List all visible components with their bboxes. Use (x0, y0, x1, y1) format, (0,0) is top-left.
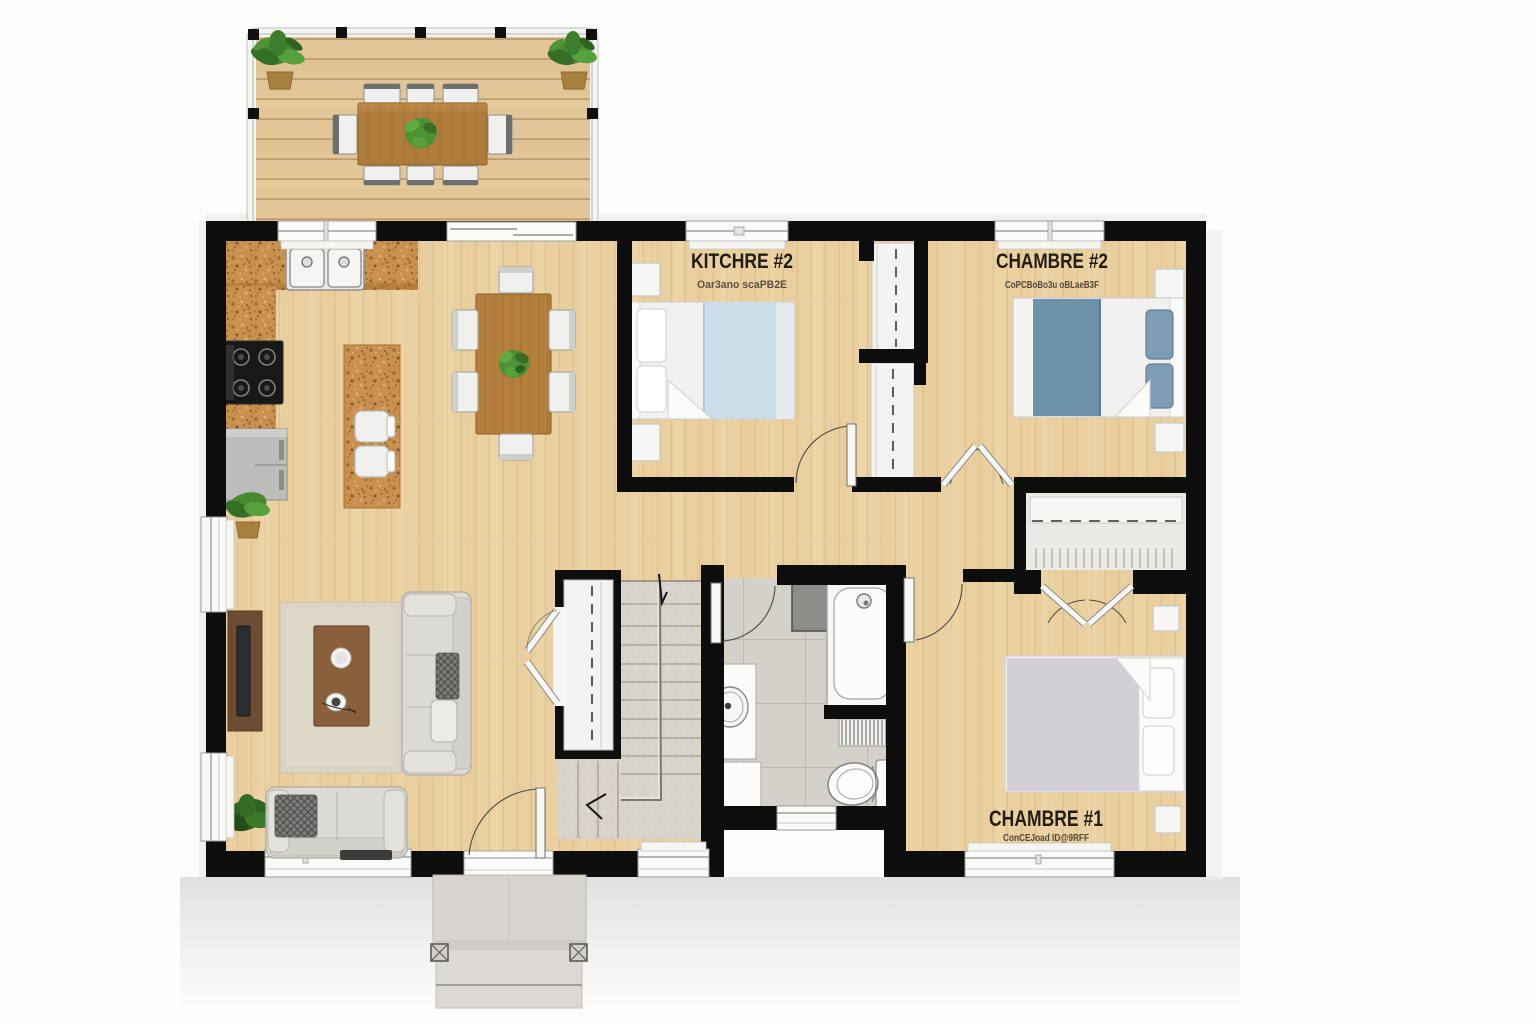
svg-text:ConCEJoad ID@9RFF: ConCEJoad ID@9RFF (1003, 832, 1089, 844)
svg-text:KITCHRE #2: KITCHRE #2 (691, 250, 793, 273)
svg-text:CHAMBRE #1: CHAMBRE #1 (989, 806, 1103, 831)
svg-text:Oar3ano scaPB2E: Oar3ano scaPB2E (697, 279, 787, 291)
svg-text:CHAMBRE #2: CHAMBRE #2 (996, 250, 1108, 273)
svg-text:CoPCBoBo3u oBLaeB3F: CoPCBoBo3u oBLaeB3F (1005, 279, 1099, 291)
